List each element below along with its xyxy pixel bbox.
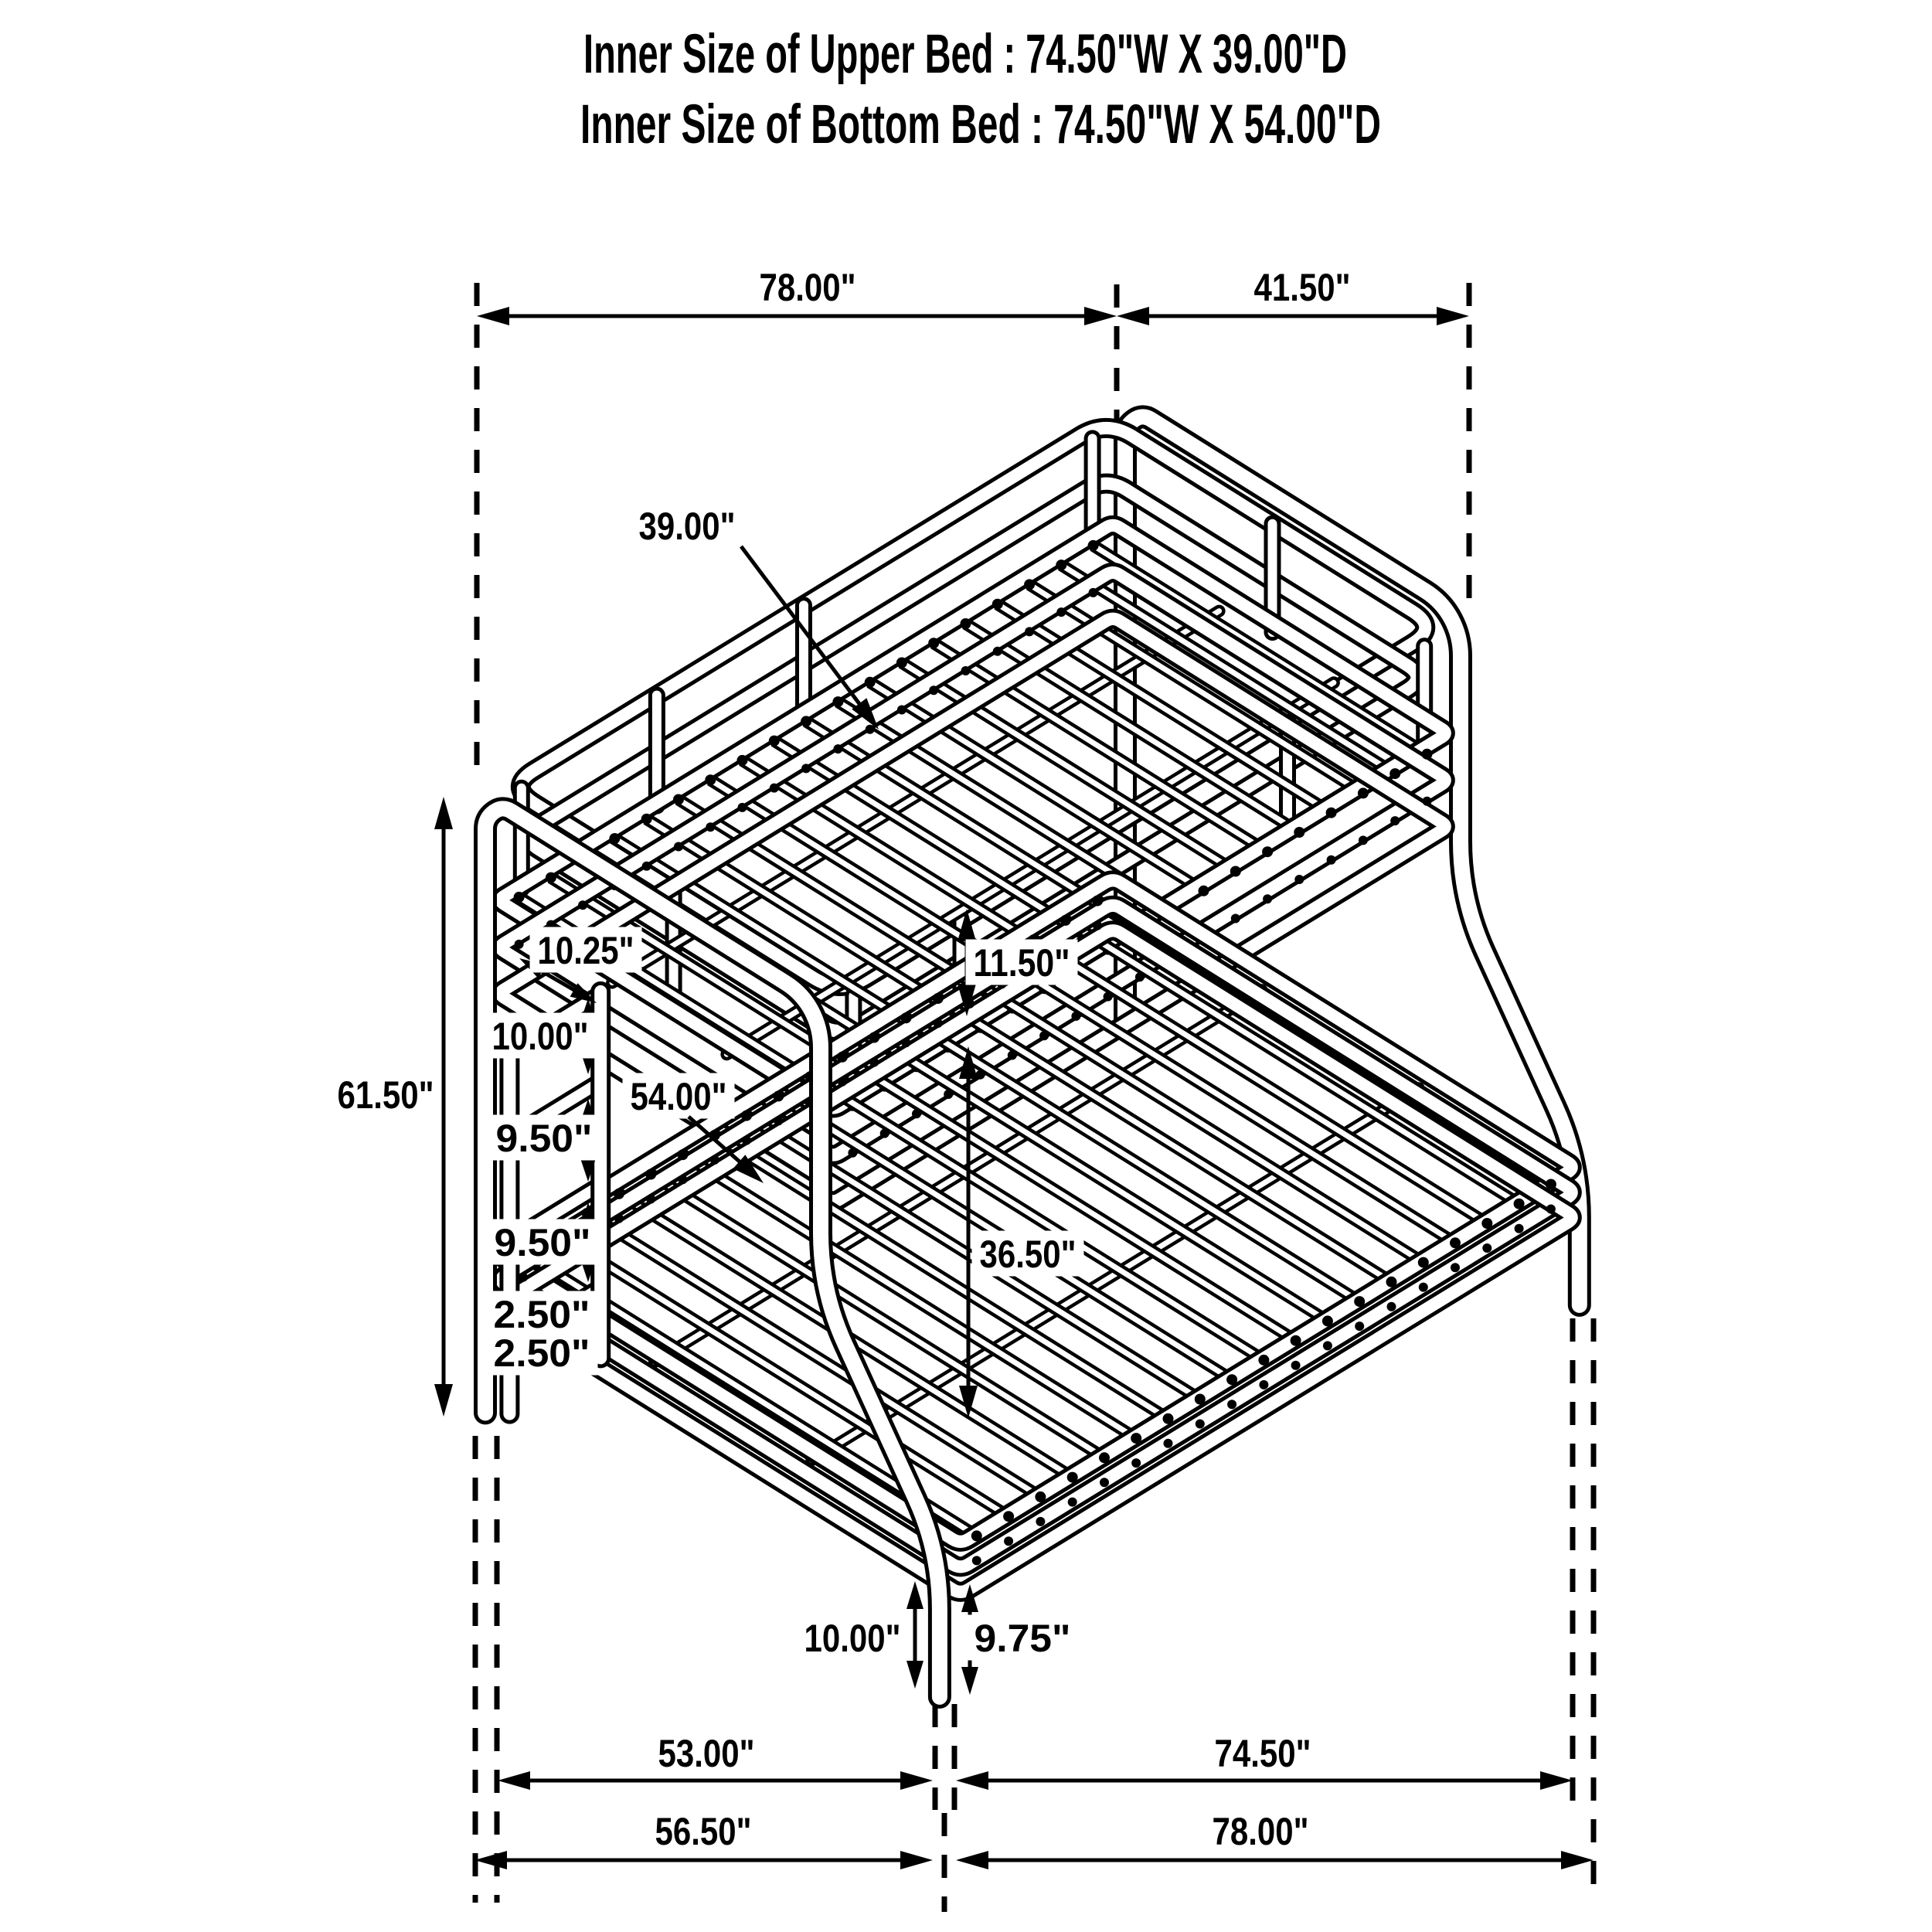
svg-text:2.50": 2.50"	[494, 1293, 590, 1336]
svg-text:53.00": 53.00"	[658, 1732, 755, 1775]
svg-text:11.50": 11.50"	[974, 941, 1070, 985]
svg-text:41.50": 41.50"	[1254, 266, 1351, 309]
svg-text:78.00": 78.00"	[1213, 1810, 1309, 1853]
svg-text:74.50": 74.50"	[1215, 1732, 1311, 1775]
svg-text:10.25": 10.25"	[538, 929, 634, 972]
svg-text:9.75": 9.75"	[975, 1617, 1071, 1660]
svg-text:2.50": 2.50"	[494, 1332, 590, 1375]
svg-text:39.00": 39.00"	[639, 505, 736, 548]
svg-text:10.00": 10.00"	[804, 1617, 901, 1660]
svg-text:9.50": 9.50"	[496, 1117, 593, 1160]
svg-text:54.00": 54.00"	[631, 1075, 727, 1118]
svg-text:61.50": 61.50"	[338, 1073, 434, 1117]
svg-text:Inner Size of Bottom Bed : 74.: Inner Size of Bottom Bed : 74.50"W X 54.…	[580, 94, 1381, 155]
svg-text:56.50": 56.50"	[655, 1810, 752, 1853]
svg-text:9.50": 9.50"	[495, 1221, 591, 1264]
svg-text:36.50": 36.50"	[980, 1233, 1077, 1276]
svg-text:Inner Size of Upper Bed : 74.5: Inner Size of Upper Bed : 74.50"W X 39.0…	[583, 24, 1347, 85]
svg-text:78.00": 78.00"	[760, 266, 856, 309]
svg-text:10.00": 10.00"	[492, 1015, 589, 1058]
